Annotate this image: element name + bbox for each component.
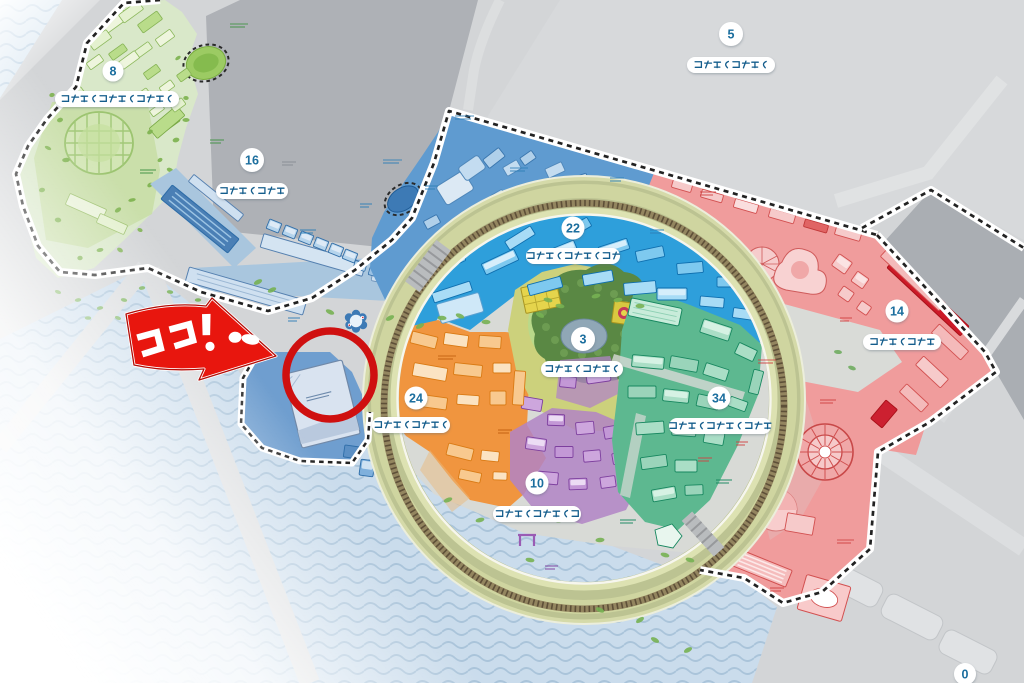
svg-text:5: 5: [728, 27, 735, 41]
svg-text:14: 14: [890, 304, 904, 318]
svg-text:3: 3: [580, 332, 587, 346]
svg-text:0: 0: [962, 667, 969, 681]
svg-text:16: 16: [245, 153, 259, 167]
svg-text:34: 34: [712, 391, 726, 405]
svg-text:10: 10: [530, 476, 544, 490]
svg-text:24: 24: [409, 391, 423, 405]
svg-text:22: 22: [566, 221, 580, 235]
svg-text:8: 8: [110, 64, 117, 78]
